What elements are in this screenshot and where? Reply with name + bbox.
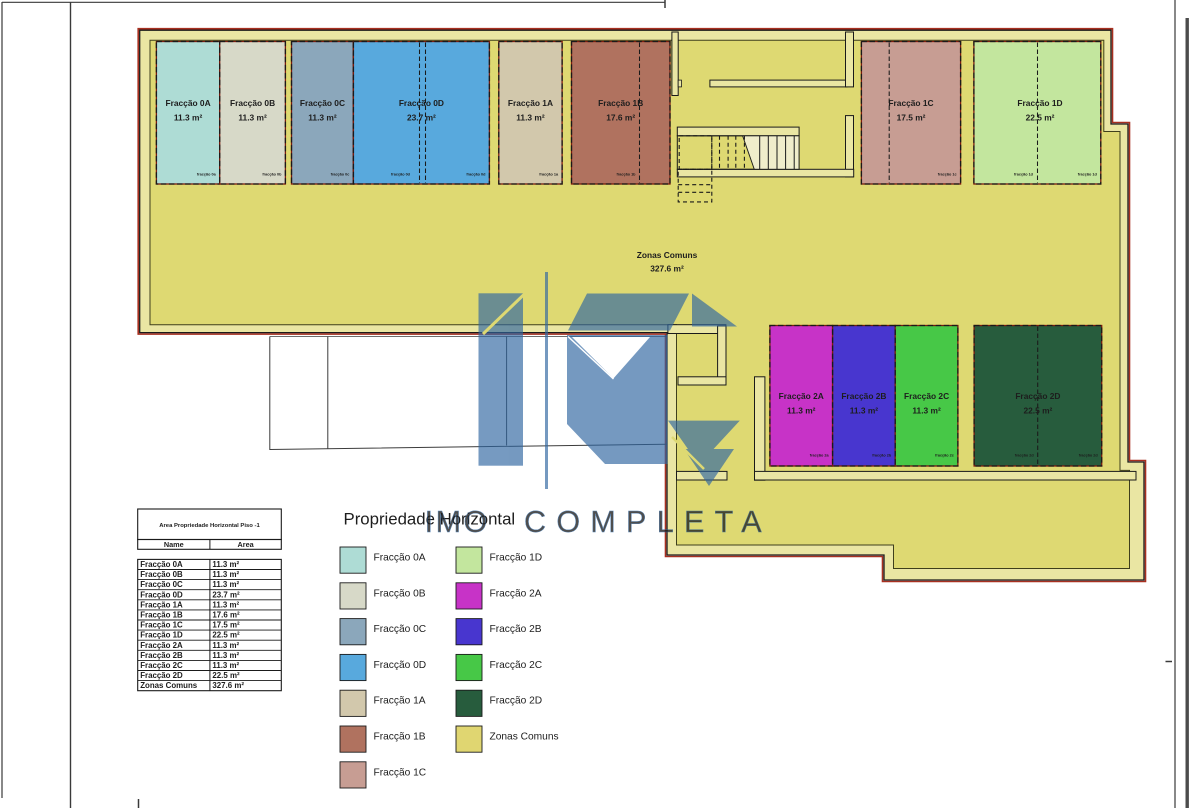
svg-text:Fracção 0D: Fracção 0D xyxy=(374,660,427,671)
svg-text:Fracção 0D: Fracção 0D xyxy=(399,98,444,108)
svg-text:11.3 m²: 11.3 m² xyxy=(212,661,239,670)
svg-text:11.3 m²: 11.3 m² xyxy=(912,406,941,416)
svg-text:Fracção 1B: Fracção 1B xyxy=(598,98,643,108)
svg-text:Fracção 2B: Fracção 2B xyxy=(841,391,886,401)
svg-text:Zonas Comuns: Zonas Comuns xyxy=(490,732,559,743)
svg-text:Fracção 0B: Fracção 0B xyxy=(374,588,426,599)
svg-text:11.3 m²: 11.3 m² xyxy=(212,600,239,609)
svg-text:22.5 m²: 22.5 m² xyxy=(1023,406,1052,416)
svg-text:Fracção 2D: Fracção 2D xyxy=(1015,391,1060,401)
svg-text:Fracção 0A: Fracção 0A xyxy=(165,98,210,108)
svg-text:11.3 m²: 11.3 m² xyxy=(787,406,816,416)
svg-text:11.3 m²: 11.3 m² xyxy=(212,651,239,660)
svg-text:17.6 m²: 17.6 m² xyxy=(212,611,240,620)
svg-text:Fracção 2D: Fracção 2D xyxy=(140,671,183,680)
svg-text:Fracção 0A: Fracção 0A xyxy=(374,553,426,564)
svg-text:23.7 m²: 23.7 m² xyxy=(407,113,436,123)
svg-text:Area: Area xyxy=(237,540,254,549)
svg-text:IMO: IMO xyxy=(425,505,490,539)
svg-text:Fracção 1C: Fracção 1C xyxy=(888,98,933,108)
svg-text:11.3 m²: 11.3 m² xyxy=(516,113,545,123)
svg-text:Fracção 1C: Fracção 1C xyxy=(374,767,427,778)
svg-text:Fracção 1A: Fracção 1A xyxy=(508,98,553,108)
svg-text:Zonas Comuns: Zonas Comuns xyxy=(140,681,198,690)
svg-text:17.5 m²: 17.5 m² xyxy=(212,621,240,630)
svg-text:fracção 0d: fracção 0d xyxy=(391,172,411,176)
svg-text:Name: Name xyxy=(164,540,184,549)
svg-text:11.3 m²: 11.3 m² xyxy=(308,113,337,123)
svg-text:fracção 1a: fracção 1a xyxy=(539,172,559,176)
svg-text:Zonas Comuns: Zonas Comuns xyxy=(637,250,698,260)
svg-text:Area Propriedade Horizontal Pi: Area Propriedade Horizontal Piso -1 xyxy=(159,523,260,529)
svg-text:fracção 1d: fracção 1d xyxy=(1078,172,1098,176)
svg-text:fracção 2a: fracção 2a xyxy=(810,454,830,458)
svg-text:Fracção 2C: Fracção 2C xyxy=(490,660,543,671)
svg-text:Fracção 0C: Fracção 0C xyxy=(300,98,345,108)
svg-text:Fracção 1A: Fracção 1A xyxy=(374,696,426,707)
svg-text:Fracção 2B: Fracção 2B xyxy=(140,651,183,660)
svg-text:17.6 m²: 17.6 m² xyxy=(606,113,635,123)
svg-text:Fracção 1C: Fracção 1C xyxy=(140,621,183,630)
svg-text:fracção 1d: fracção 1d xyxy=(1014,172,1034,176)
svg-text:22.5 m²: 22.5 m² xyxy=(1026,113,1055,123)
svg-text:327.6 m²: 327.6 m² xyxy=(212,681,244,690)
svg-text:Fracção 1B: Fracção 1B xyxy=(374,732,426,743)
svg-text:22.5 m²: 22.5 m² xyxy=(212,631,240,640)
svg-text:23.7 m²: 23.7 m² xyxy=(212,590,240,599)
svg-text:fracção 2d: fracção 2d xyxy=(1079,454,1099,458)
svg-text:fracção 1b: fracção 1b xyxy=(617,172,637,176)
svg-text:COMPLETA: COMPLETA xyxy=(524,505,772,539)
svg-text:Fracção 0D: Fracção 0D xyxy=(140,590,183,599)
svg-text:Fracção 2A: Fracção 2A xyxy=(779,391,824,401)
svg-text:fracção 0a: fracção 0a xyxy=(197,172,217,176)
svg-text:Fracção 1B: Fracção 1B xyxy=(140,611,183,620)
svg-text:11.3 m²: 11.3 m² xyxy=(850,406,879,416)
svg-text:11.3 m²: 11.3 m² xyxy=(212,580,239,589)
svg-text:fracção 2b: fracção 2b xyxy=(872,454,892,458)
svg-text:11.3 m²: 11.3 m² xyxy=(174,113,203,123)
svg-text:22.5 m²: 22.5 m² xyxy=(212,671,240,680)
svg-text:Fracção 1D: Fracção 1D xyxy=(490,553,543,564)
svg-text:327.6 m²: 327.6 m² xyxy=(650,263,684,273)
svg-text:Fracção 2A: Fracção 2A xyxy=(490,588,542,599)
svg-text:fracção 2c: fracção 2c xyxy=(935,454,954,458)
svg-text:11.3 m²: 11.3 m² xyxy=(238,113,267,123)
svg-text:Fracção 1D: Fracção 1D xyxy=(1017,98,1062,108)
svg-text:fracção 0d: fracção 0d xyxy=(466,172,486,176)
svg-text:Fracção 0B: Fracção 0B xyxy=(140,570,183,579)
svg-text:11.3 m²: 11.3 m² xyxy=(212,641,239,650)
svg-text:Fracção 1D: Fracção 1D xyxy=(140,631,183,640)
svg-text:Fracção 2B: Fracção 2B xyxy=(490,624,542,635)
svg-text:11.3 m²: 11.3 m² xyxy=(212,560,239,569)
svg-text:Fracção 2A: Fracção 2A xyxy=(140,641,183,650)
svg-text:Fracção 0C: Fracção 0C xyxy=(140,580,183,589)
svg-text:17.5 m²: 17.5 m² xyxy=(897,113,926,123)
svg-text:Fracção 0B: Fracção 0B xyxy=(230,98,275,108)
svg-text:Fracção 2D: Fracção 2D xyxy=(490,696,543,707)
svg-text:Fracção 1A: Fracção 1A xyxy=(140,600,183,609)
svg-text:Fracção 2C: Fracção 2C xyxy=(904,391,949,401)
svg-text:fracção 0c: fracção 0c xyxy=(331,172,350,176)
svg-text:fracção 0b: fracção 0b xyxy=(262,172,282,176)
svg-text:fracção 1c: fracção 1c xyxy=(938,172,957,176)
svg-text:Fracção 0A: Fracção 0A xyxy=(140,560,183,569)
svg-text:11.3 m²: 11.3 m² xyxy=(212,570,239,579)
svg-text:Fracção 2C: Fracção 2C xyxy=(140,661,183,670)
svg-text:fracção 2d: fracção 2d xyxy=(1015,454,1035,458)
svg-text:Fracção 0C: Fracção 0C xyxy=(374,624,427,635)
